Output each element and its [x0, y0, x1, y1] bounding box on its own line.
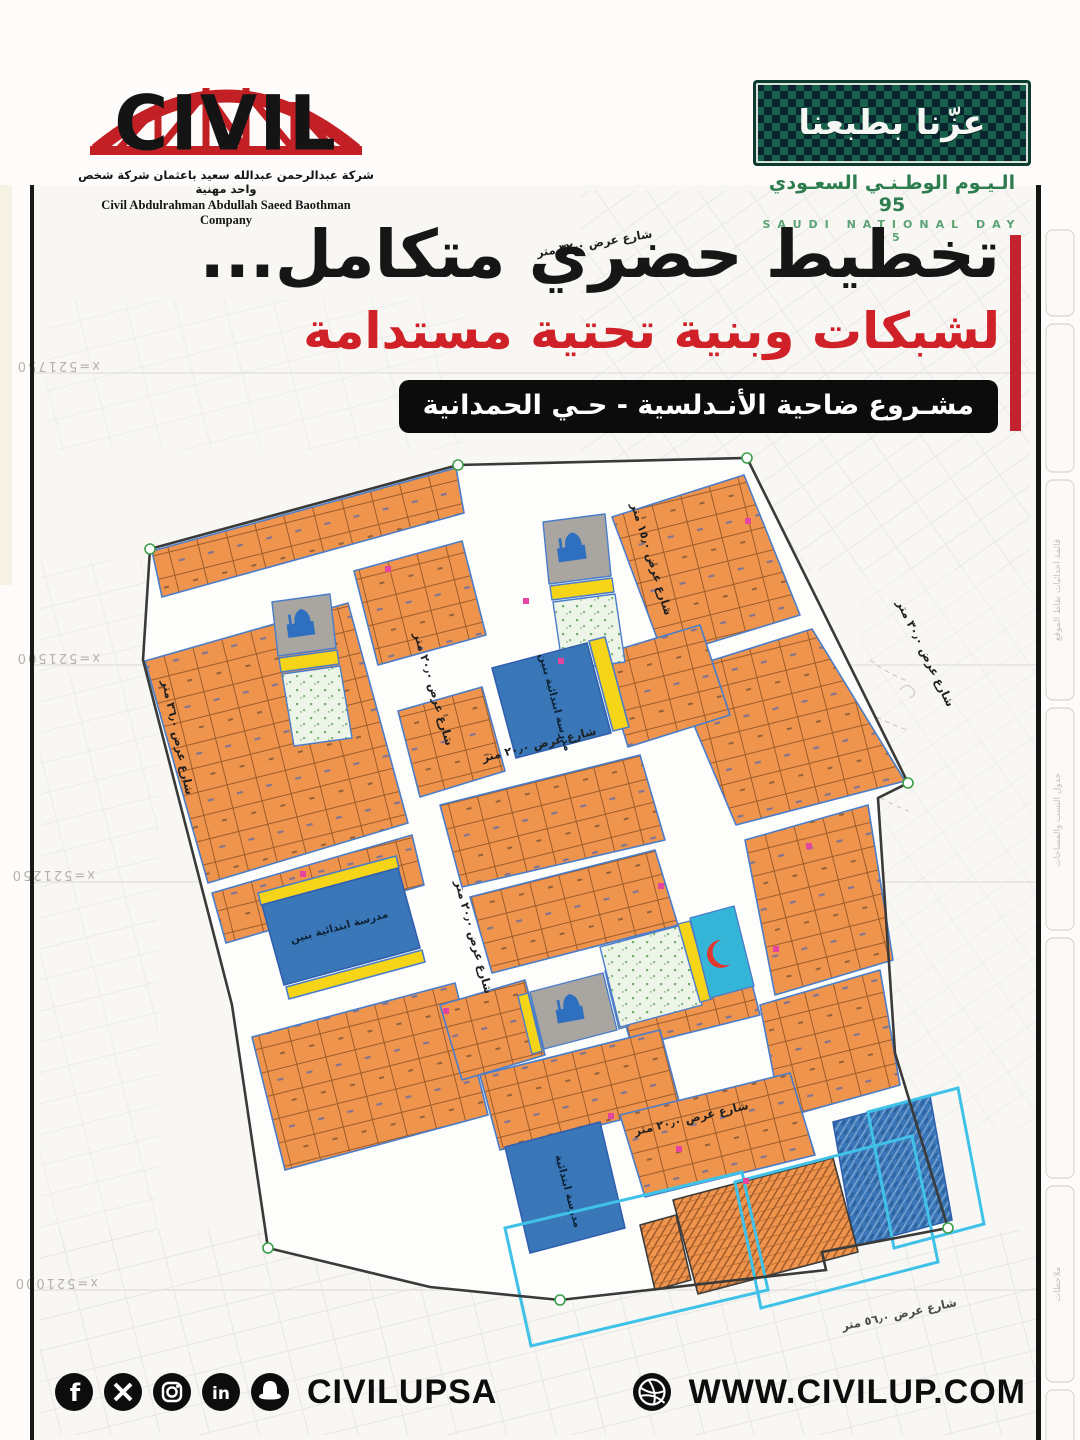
globe-icon — [632, 1372, 672, 1412]
headline-line2: لشبكات وبنية تحتية مستدامة — [280, 302, 1000, 360]
footer-bar: f in CIVILUPSA — [54, 1366, 1026, 1418]
scan-edge-tint — [0, 185, 12, 585]
website-url[interactable]: WWW.CIVILUP.COM — [689, 1373, 1026, 1412]
instagram-icon[interactable] — [152, 1372, 192, 1412]
sidebar-panel-label: قائمة احداثيات نقاط الموقع — [1053, 539, 1063, 641]
national-day-slogan-box: عزّنا بطبعنا — [753, 80, 1031, 166]
coordinate-label: x=521750 — [16, 358, 100, 373]
svg-text:in: in — [212, 1384, 230, 1404]
snapchat-icon[interactable] — [250, 1372, 290, 1412]
scan-left-border — [30, 185, 34, 1440]
x-icon[interactable] — [103, 1372, 143, 1412]
footer-website-group: WWW.CIVILUP.COM — [632, 1372, 1026, 1412]
sidebar-panel-label: جدول النسب والمساحات — [1053, 773, 1063, 867]
civil-logo-art: CIVIL — [78, 80, 374, 166]
coordinate-label: x=521500 — [16, 650, 100, 665]
scan-right-border — [1036, 185, 1041, 1440]
national-day-title-ar: الـيـوم الوطـنـي السعـودي 95 — [753, 172, 1031, 216]
headline-line1: تخطيط حضري متكامل... — [280, 220, 1000, 289]
coordinate-label: x=521000 — [14, 1275, 98, 1290]
linkedin-icon[interactable]: in — [201, 1372, 241, 1412]
footer-social-group: f in CIVILUPSA — [54, 1372, 497, 1412]
social-handle: CIVILUPSA — [307, 1373, 497, 1412]
logo-brand-text: CIVIL — [78, 83, 374, 165]
titleblock-sidebar: قائمة احداثيات نقاط الموقع جدول النسب وا… — [1046, 230, 1074, 1440]
project-name-banner: مشـروع ضاحية الأنـدلسية - حـي الحمدانية — [399, 380, 998, 433]
coordinate-label: x=521250 — [11, 867, 95, 882]
sidebar-panel-label: ملاحظات — [1053, 1267, 1063, 1302]
national-day-slogan: عزّنا بطبعنا — [798, 103, 985, 143]
facebook-icon[interactable]: f — [54, 1372, 94, 1412]
logo-company-name-ar: شركة عبدالرحمن عبدالله سعيد باعثمان شركة… — [78, 168, 374, 196]
company-logo: CIVIL شركة عبدالرحمن عبدالله سعيد باعثما… — [78, 80, 374, 228]
headline-accent-bar — [1010, 235, 1021, 431]
poster-page: x=521750 x=521500 x=521250 x=521000 — [0, 0, 1080, 1440]
svg-text:f: f — [70, 1379, 81, 1407]
